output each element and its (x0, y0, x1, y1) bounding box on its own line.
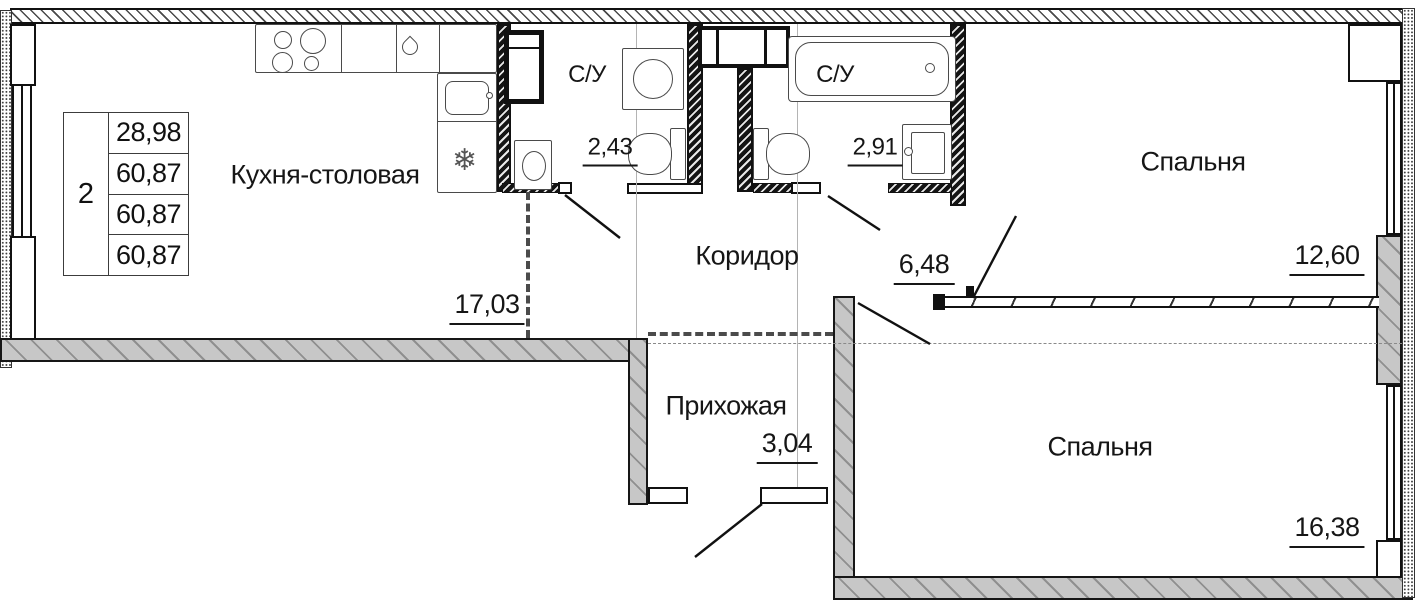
faucet-icon (904, 147, 913, 156)
bath1-sink (514, 140, 552, 190)
window-bedroom1 (1386, 82, 1402, 235)
area-table-row: 60,87 (109, 235, 188, 275)
vent-shaft-divider (716, 30, 719, 64)
wall-bedrooms-partition (937, 296, 1379, 308)
stove-burner-icon (304, 56, 319, 71)
corridor-label: Коридор (695, 241, 798, 272)
zone-boundary-kitchen-corridor (526, 192, 530, 338)
toilet1-tank (670, 128, 686, 180)
fridge-icon: ❄ (452, 146, 477, 176)
area-table-row: 60,87 (109, 195, 188, 236)
bedroom1-area: 12,60 (1289, 240, 1364, 276)
wall-top-exterior (10, 8, 1408, 24)
area-table-row: 28,98 (109, 113, 188, 154)
door-jamb-bedroom1 (966, 286, 974, 298)
area-table: 2 28,98 60,87 60,87 60,87 (63, 112, 189, 276)
door-leaf-bedroom2 (858, 303, 930, 344)
wall-entry-jamb-right (760, 487, 828, 504)
corridor-area: 6,48 (894, 249, 955, 285)
axis-line-horizontal (648, 343, 1402, 344)
wall-bedroom2-left (833, 296, 855, 578)
faucet-icon (486, 92, 493, 99)
door-leaf-bath1 (565, 195, 620, 238)
bath1-sink-basin (522, 151, 546, 181)
wall-bath2-bottom-left (753, 183, 793, 193)
wall-pier-right-bottom (1376, 540, 1402, 578)
stove-burner-icon (272, 52, 293, 73)
door-jamb-bath1 (558, 182, 572, 194)
area-table-rooms-count: 2 (64, 113, 109, 275)
window-kitchen (12, 84, 32, 238)
bathroom2-area: 2,91 (848, 134, 903, 167)
hallway-label: Прихожая (665, 391, 786, 422)
wall-entry-jamb-left (648, 487, 688, 504)
insulation-right (1402, 8, 1415, 598)
wall-pier-left-bottom (10, 236, 36, 346)
wall-pier-left-top (10, 24, 36, 86)
door-leaf-bedroom1 (973, 216, 1016, 298)
wall-bath1-bottom-right (627, 183, 703, 194)
floor-plan: ❄ Кухня-столовая 17,03 С/У 2,43 С/У 2,91… (0, 0, 1419, 600)
wall-bath2-bottom-right (888, 183, 952, 193)
washer-cabinet (622, 48, 684, 110)
wall-kitchen-bottom (0, 338, 648, 362)
toilet2-bowl (766, 133, 810, 175)
bathroom1-label: С/У (568, 61, 606, 89)
gas-heater-icon (399, 36, 422, 59)
snowflake-glyph: ❄ (452, 143, 477, 178)
counter-divider (439, 25, 440, 72)
window-bedroom2 (1386, 385, 1402, 540)
kitchen-counter-right: ❄ (437, 73, 497, 193)
bedroom1-label: Спальня (1141, 147, 1246, 178)
wall-bottom-exterior (833, 576, 1413, 600)
counter-divider (438, 121, 496, 122)
stove-burner-icon (300, 28, 326, 54)
wall-pier-right-middle (1376, 235, 1402, 385)
area-table-rows: 28,98 60,87 60,87 60,87 (109, 113, 188, 275)
washer-panel-line (509, 47, 539, 49)
bath2-sink (902, 124, 952, 180)
wall-hallway-left (628, 338, 648, 505)
wall-bath2-left (737, 68, 753, 192)
washer-drum-icon (633, 59, 673, 99)
door-leaf-bath2 (828, 196, 880, 230)
vent-shaft (698, 26, 790, 68)
washing-machine (504, 30, 544, 104)
wall-pier-right-top (1348, 24, 1402, 82)
bedroom2-label: Спальня (1048, 432, 1153, 463)
bedroom2-area: 16,38 (1289, 512, 1364, 548)
bath2-sink-basin (911, 132, 945, 174)
kitchen-area: 17,03 (449, 289, 524, 325)
kitchen-label: Кухня-столовая (231, 160, 420, 191)
zone-boundary-corridor-hallway (648, 332, 833, 336)
door-jamb-bath2 (791, 182, 821, 194)
kitchen-counter (255, 24, 497, 73)
hallway-area: 3,04 (757, 428, 818, 464)
area-table-row: 60,87 (109, 154, 188, 195)
bathroom1-area: 2,43 (583, 134, 638, 167)
kitchen-sink (445, 81, 489, 115)
vent-shaft-divider2 (764, 30, 767, 64)
counter-divider (396, 25, 397, 72)
partition-end-cap (933, 294, 945, 310)
bathtub (788, 36, 956, 102)
stove-burner-icon (274, 31, 292, 49)
bathroom2-label: С/У (816, 61, 854, 89)
door-leaf-entry (695, 504, 762, 557)
counter-divider (341, 25, 342, 72)
bathtub-drain-icon (925, 63, 935, 73)
